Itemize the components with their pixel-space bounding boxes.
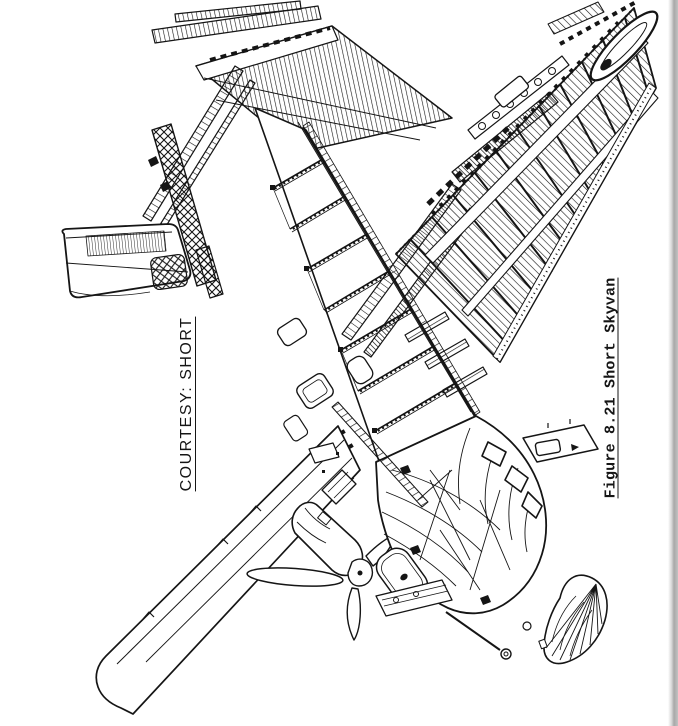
starboard-wing	[396, 4, 665, 362]
rudder-panel	[62, 224, 190, 297]
port-wing	[96, 426, 360, 714]
courtesy-label: COURTESY: SHORT	[178, 317, 196, 492]
figure-caption: Figure 8.21 Short Skyvan	[603, 278, 620, 499]
nose-cone	[539, 575, 607, 663]
page-edge-shadow	[668, 0, 678, 726]
cockpit-section	[332, 402, 546, 659]
skyvan-cutaway-drawing	[0, 0, 678, 726]
scanned-figure-page: COURTESY: SHORT Figure 8.21 Short Skyvan	[0, 0, 678, 726]
crew-door-panel	[523, 419, 598, 462]
